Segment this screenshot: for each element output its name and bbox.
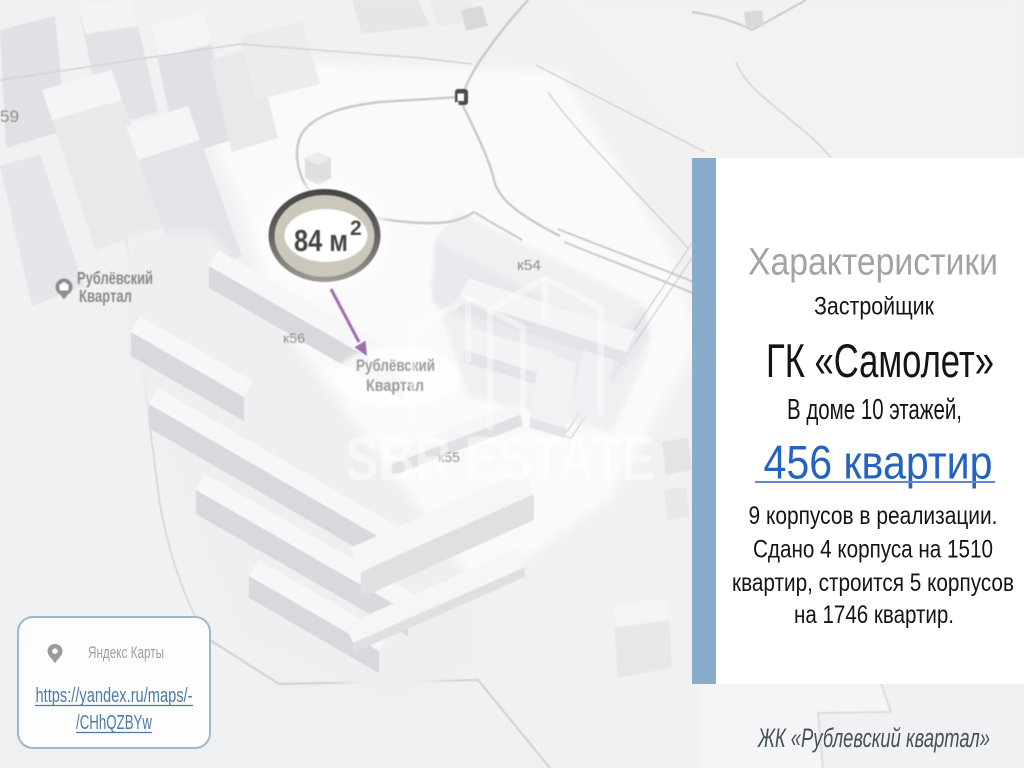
svg-text:Характеристики: Характеристики [748, 242, 998, 284]
svg-text:/CHhQZBYw: /CHhQZBYw [76, 712, 152, 734]
svg-text:Яндекс Карты: Яндекс Карты [88, 643, 164, 662]
svg-text:ЖК «Рублевский квартал»: ЖК «Рублевский квартал» [757, 723, 990, 753]
svg-text:https://yandex.ru/maps/-: https://yandex.ru/maps/- [36, 685, 193, 707]
svg-text:В доме 10 этажей,: В доме 10 этажей, [787, 394, 962, 426]
svg-text:квартир, строится 5 корпусов: квартир, строится 5 корпусов [732, 569, 1014, 597]
svg-text:9 корпусов в реализации.: 9 корпусов в реализации. [749, 502, 998, 530]
svg-text:ГК «Самолет»: ГК «Самолет» [766, 335, 994, 388]
svg-text:на 1746 квартир.: на 1746 квартир. [794, 601, 954, 629]
svg-text:Сдано 4 корпуса на 1510: Сдано 4 корпуса на 1510 [753, 536, 993, 564]
svg-text:Застройщик: Застройщик [814, 293, 935, 321]
